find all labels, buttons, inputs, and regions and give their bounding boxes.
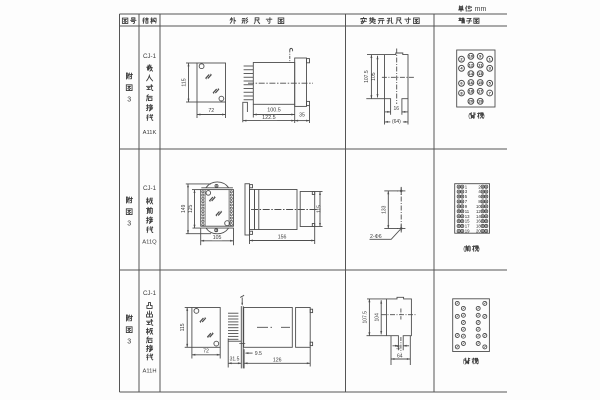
svg-text:115: 115 bbox=[181, 78, 187, 86]
svg-text:4: 4 bbox=[460, 66, 463, 71]
svg-text:3: 3 bbox=[127, 339, 131, 346]
svg-text:14: 14 bbox=[469, 71, 474, 76]
svg-text:126: 126 bbox=[273, 357, 282, 363]
svg-text:19: 19 bbox=[465, 229, 470, 234]
svg-text:6: 6 bbox=[460, 81, 463, 86]
svg-text:): ) bbox=[483, 114, 485, 120]
svg-text:105: 105 bbox=[213, 235, 222, 241]
svg-text:5: 5 bbox=[489, 81, 492, 86]
svg-text:64: 64 bbox=[397, 354, 403, 360]
svg-text:107.5: 107.5 bbox=[364, 70, 370, 83]
svg-text:(: ( bbox=[463, 247, 465, 253]
svg-text:9: 9 bbox=[479, 54, 482, 59]
svg-text:19: 19 bbox=[478, 99, 483, 104]
svg-text:115: 115 bbox=[316, 205, 322, 213]
svg-text:100.5: 100.5 bbox=[267, 108, 281, 114]
svg-text:2: 2 bbox=[460, 57, 463, 62]
svg-text:149: 149 bbox=[181, 204, 187, 213]
svg-text:A11K: A11K bbox=[143, 130, 157, 136]
svg-text:20: 20 bbox=[469, 99, 474, 104]
svg-text:133: 133 bbox=[381, 205, 387, 214]
svg-text:3: 3 bbox=[489, 66, 492, 71]
svg-text:16: 16 bbox=[396, 344, 401, 350]
svg-text:17: 17 bbox=[478, 89, 483, 94]
svg-text:15: 15 bbox=[478, 80, 483, 85]
svg-text:2-Φ6: 2-Φ6 bbox=[370, 234, 382, 240]
svg-text:CJ-1: CJ-1 bbox=[143, 53, 157, 60]
svg-text:): ) bbox=[478, 247, 480, 253]
svg-text:mm: mm bbox=[475, 6, 487, 13]
svg-text:13: 13 bbox=[478, 71, 483, 76]
svg-text:20: 20 bbox=[476, 229, 481, 234]
svg-text:115: 115 bbox=[180, 323, 186, 331]
svg-text:(64): (64) bbox=[392, 119, 401, 125]
svg-text:7: 7 bbox=[489, 90, 492, 95]
svg-text:31.5: 31.5 bbox=[230, 357, 240, 363]
svg-text:10: 10 bbox=[469, 54, 474, 59]
svg-text:104: 104 bbox=[375, 313, 381, 322]
svg-text:): ) bbox=[477, 359, 479, 365]
svg-text:9.5: 9.5 bbox=[255, 351, 262, 357]
svg-text:A11H: A11H bbox=[142, 369, 156, 375]
svg-text:CJ-1: CJ-1 bbox=[143, 185, 157, 192]
svg-text:107.5: 107.5 bbox=[362, 311, 368, 324]
svg-text:156: 156 bbox=[278, 234, 287, 240]
svg-text:CJ-1: CJ-1 bbox=[143, 290, 157, 297]
svg-text:72: 72 bbox=[208, 108, 214, 114]
svg-text:125: 125 bbox=[188, 204, 194, 213]
svg-text:8: 8 bbox=[460, 90, 463, 95]
svg-text:122.5: 122.5 bbox=[262, 115, 276, 121]
svg-text:12: 12 bbox=[469, 62, 474, 67]
svg-text:16: 16 bbox=[394, 106, 400, 112]
svg-text:1: 1 bbox=[489, 57, 492, 62]
svg-text:18: 18 bbox=[469, 89, 474, 94]
svg-text:35: 35 bbox=[299, 113, 305, 119]
svg-text:3: 3 bbox=[127, 97, 131, 104]
svg-text:72: 72 bbox=[203, 349, 209, 355]
svg-text:105: 105 bbox=[371, 72, 377, 81]
svg-text:3: 3 bbox=[127, 221, 131, 228]
svg-text:A11Q: A11Q bbox=[142, 240, 157, 246]
svg-text:16: 16 bbox=[469, 80, 474, 85]
